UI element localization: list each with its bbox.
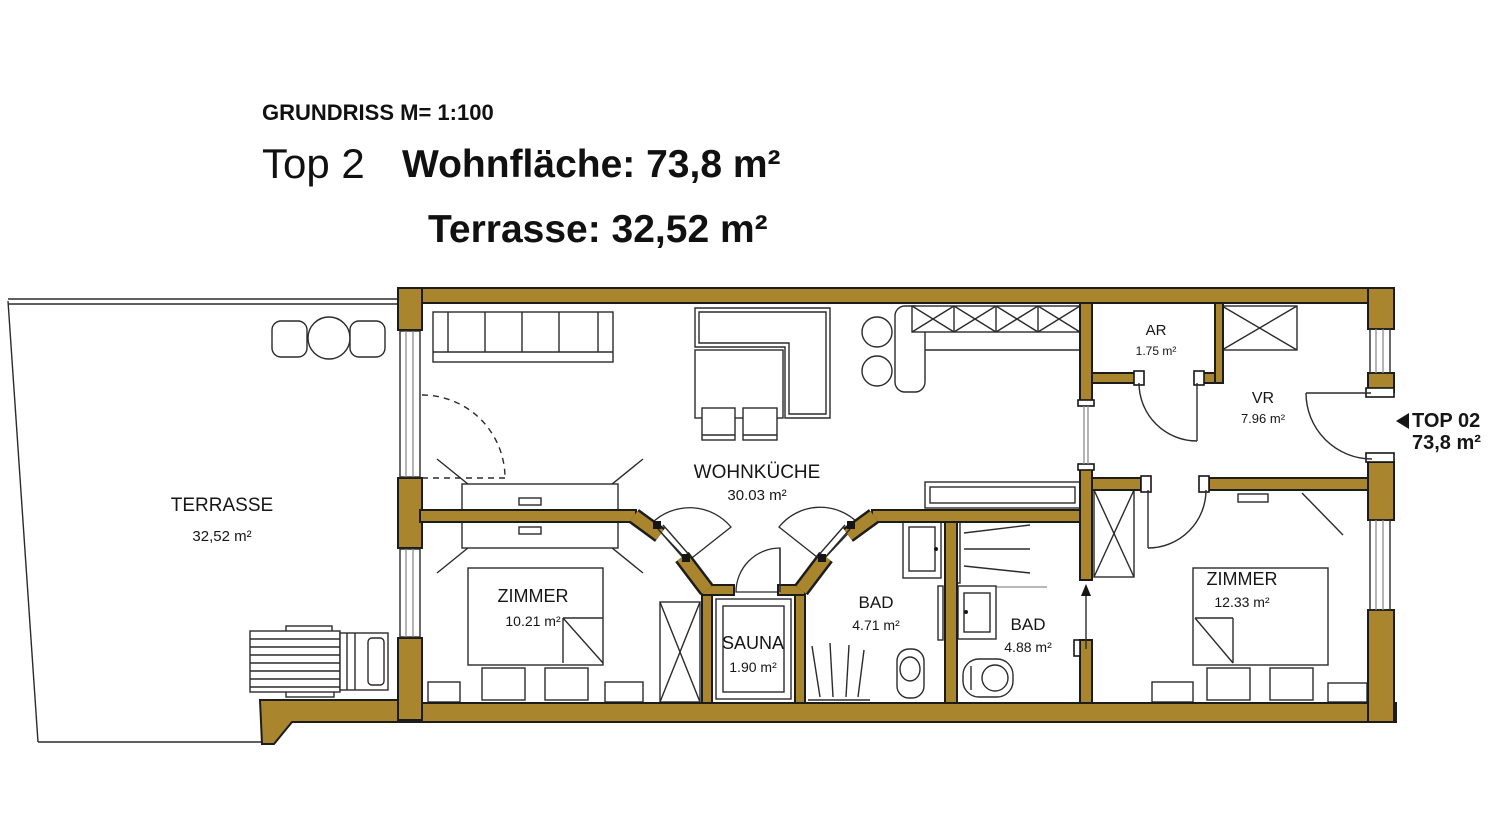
shower-2 [954,521,1047,587]
wall-between-baths [945,522,957,703]
room-area-wohnkueche: 30.03 m² [727,487,786,504]
room-label-bad1: BAD [859,593,894,612]
door-storage-room [1134,371,1204,441]
wall-living-baths [872,510,1080,522]
room-area-sauna: 1.90 m² [729,659,777,675]
terrace-door-swing [422,395,505,478]
nightstand [1270,668,1313,700]
wall-right-4 [1368,610,1394,722]
wall-hall-upper [1080,303,1092,403]
entrance-area: 73,8 m² [1412,432,1481,454]
terrace-table [308,317,350,359]
radiator [938,586,943,640]
kitchen-block [862,306,1080,508]
door-swing-bedroom1 [652,508,731,561]
room-area-bad2: 4.88 m² [1004,639,1052,655]
window-right-2 [1370,520,1390,610]
shower-1 [808,643,870,703]
nightstand [1207,668,1250,700]
room-label-ar: AR [1146,322,1167,339]
nightstand [545,668,588,700]
entrance-arrow-icon [1396,413,1409,429]
wall-vr-zimmer-right [1209,478,1368,490]
room-label-wohnkueche: WOHNKÜCHE [694,462,821,483]
wall-right-3 [1368,462,1394,520]
terrace-chair-right [350,321,385,357]
window-right-1 [1370,329,1390,373]
room-label-terrasse: TERRASSE [171,495,273,516]
room-label-bad2: BAD [1011,615,1046,634]
window-swing-line [1302,493,1343,535]
terrace-chair-left [272,321,307,357]
wall-shelf [1238,494,1268,502]
cooktop-circle-2 [862,356,892,386]
room-area-terrasse: 32,52 m² [192,528,251,545]
door-swing-sauna [736,548,780,592]
terrace-table-set [272,317,385,359]
floorplan-page: GRUNDRISS M= 1:100 Top 2 Wohnfläche: 73,… [0,0,1500,816]
room-area-ar: 1.75 m² [1136,344,1177,358]
floorplan-drawing: TERRASSE 32,52 m² WOHNKÜCHE 30.03 m² ZIM… [0,0,1500,816]
glazed-opening-hall [1078,400,1094,470]
room-label-vr: VR [1252,390,1274,407]
dining-set [695,308,830,440]
wall-hall-mid [1080,466,1092,580]
window-left-2 [400,549,420,637]
wall-step-bottom-left [260,700,398,744]
wall-ar-bottom-left [1092,373,1136,383]
wall-living-bedroom1 [420,510,636,522]
wall-top [398,288,1392,303]
entrance-tag: TOP 02 73,8 m² [1396,410,1481,454]
nightstand [482,668,525,700]
wall-sauna-left [702,585,712,703]
wall-vr-zimmer-left [1092,478,1141,490]
sofa [433,312,613,362]
room-area-bad1: 4.71 m² [852,617,900,633]
wall-ar-right [1215,303,1223,383]
room-label-zimmer1: ZIMMER [498,586,569,606]
room-area-zimmer2: 12.33 m² [1214,594,1270,610]
room-label-sauna: SAUNA [722,633,784,653]
room-area-zimmer1: 10.21 m² [505,613,561,629]
entrance-label: TOP 02 [1412,410,1480,432]
wall-bottom [398,703,1396,722]
room-label-zimmer2: ZIMMER [1207,569,1278,589]
entrance-door [1306,388,1394,462]
wall-left-1 [398,288,422,330]
window-left-1 [400,331,420,477]
wall-hall-lower [1080,640,1092,703]
terrace-lounger [250,626,388,697]
cooktop-circle-1 [862,317,892,347]
wall-sauna-right [795,585,805,703]
wall-right-1 [1368,288,1394,329]
room-area-vr: 7.96 m² [1241,411,1286,426]
wall-left-3 [398,638,422,720]
wall-left-2 [398,478,422,548]
bath2-fixtures [954,521,1047,697]
door-bedroom2 [1141,476,1209,548]
